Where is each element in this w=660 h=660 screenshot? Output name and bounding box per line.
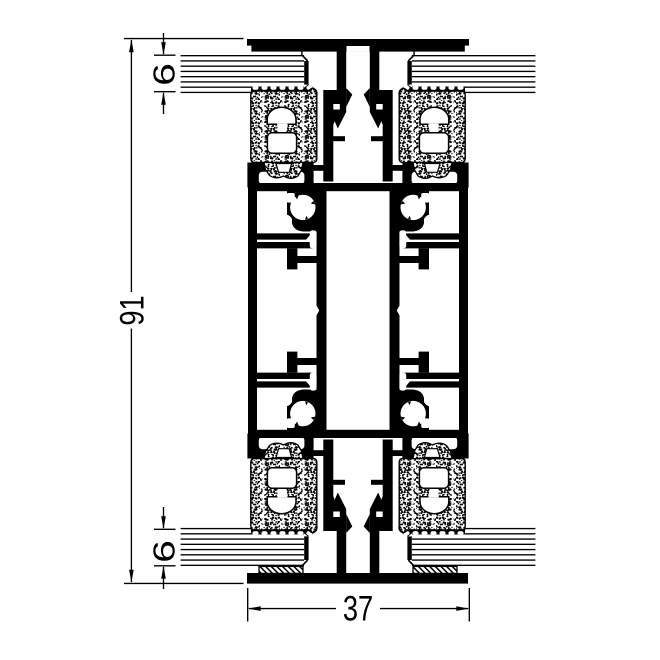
svg-text:6: 6 xyxy=(146,63,181,86)
svg-text:6: 6 xyxy=(146,540,181,563)
svg-text:91: 91 xyxy=(112,295,151,325)
svg-text:37: 37 xyxy=(343,589,373,628)
